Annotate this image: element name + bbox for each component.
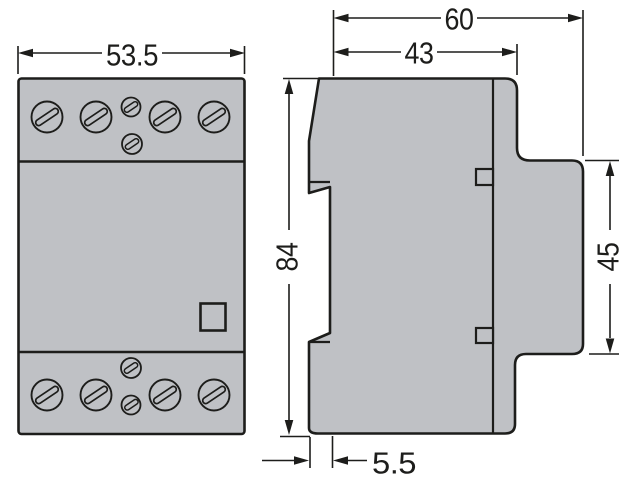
screw-terminal-small	[122, 396, 141, 415]
arrowhead-left-icon	[334, 14, 349, 23]
screw-terminal	[150, 102, 181, 133]
arrowhead-left-icon	[334, 48, 349, 57]
screw-terminal	[199, 102, 230, 133]
arrowhead-up-icon	[285, 79, 294, 94]
dimension-side-right-height: 45	[585, 161, 626, 355]
dimension-front-width: 53.5	[18, 38, 245, 75]
dimension-side-upper-width: 43	[334, 36, 518, 76]
screw-terminal	[150, 380, 181, 411]
dimension-label-side-upper-width: 43	[405, 36, 434, 71]
screw-terminal	[199, 380, 230, 411]
dimension-label-side-height: 84	[270, 242, 305, 271]
arrowhead-right-icon	[294, 456, 309, 465]
arrowhead-right-icon	[502, 48, 517, 57]
screw-terminal	[32, 380, 63, 411]
arrowhead-right-icon	[230, 49, 245, 58]
arrowhead-left-icon	[333, 456, 348, 465]
side-clip-upper	[476, 169, 493, 185]
side-view	[309, 79, 583, 434]
dimension-drawing: 53.5 60 43 84 45	[0, 0, 643, 488]
dimension-label-front-width: 53.5	[106, 38, 158, 73]
screw-terminal	[81, 380, 112, 411]
drawing-canvas: 53.5 60 43 84 45	[0, 0, 643, 488]
dimension-label-side-right-height: 45	[591, 243, 626, 272]
screw-terminal-small	[122, 98, 141, 117]
screw-terminal-small	[121, 358, 141, 378]
screw-terminal-small	[122, 134, 142, 154]
front-view	[19, 79, 245, 435]
screw-terminal	[32, 102, 63, 133]
arrowhead-right-icon	[568, 14, 583, 23]
dimension-label-side-foot-offset: 5.5	[372, 446, 416, 481]
arrowhead-down-icon	[285, 420, 294, 435]
side-view-body-outline	[309, 79, 583, 434]
arrowhead-left-icon	[18, 49, 33, 58]
dimension-label-side-overall-width: 60	[445, 2, 474, 37]
dimension-side-foot-offset: 5.5	[262, 436, 416, 481]
screw-terminal	[81, 102, 112, 133]
side-clip-lower	[476, 328, 493, 343]
arrowhead-down-icon	[606, 339, 615, 354]
arrowhead-up-icon	[606, 161, 615, 176]
